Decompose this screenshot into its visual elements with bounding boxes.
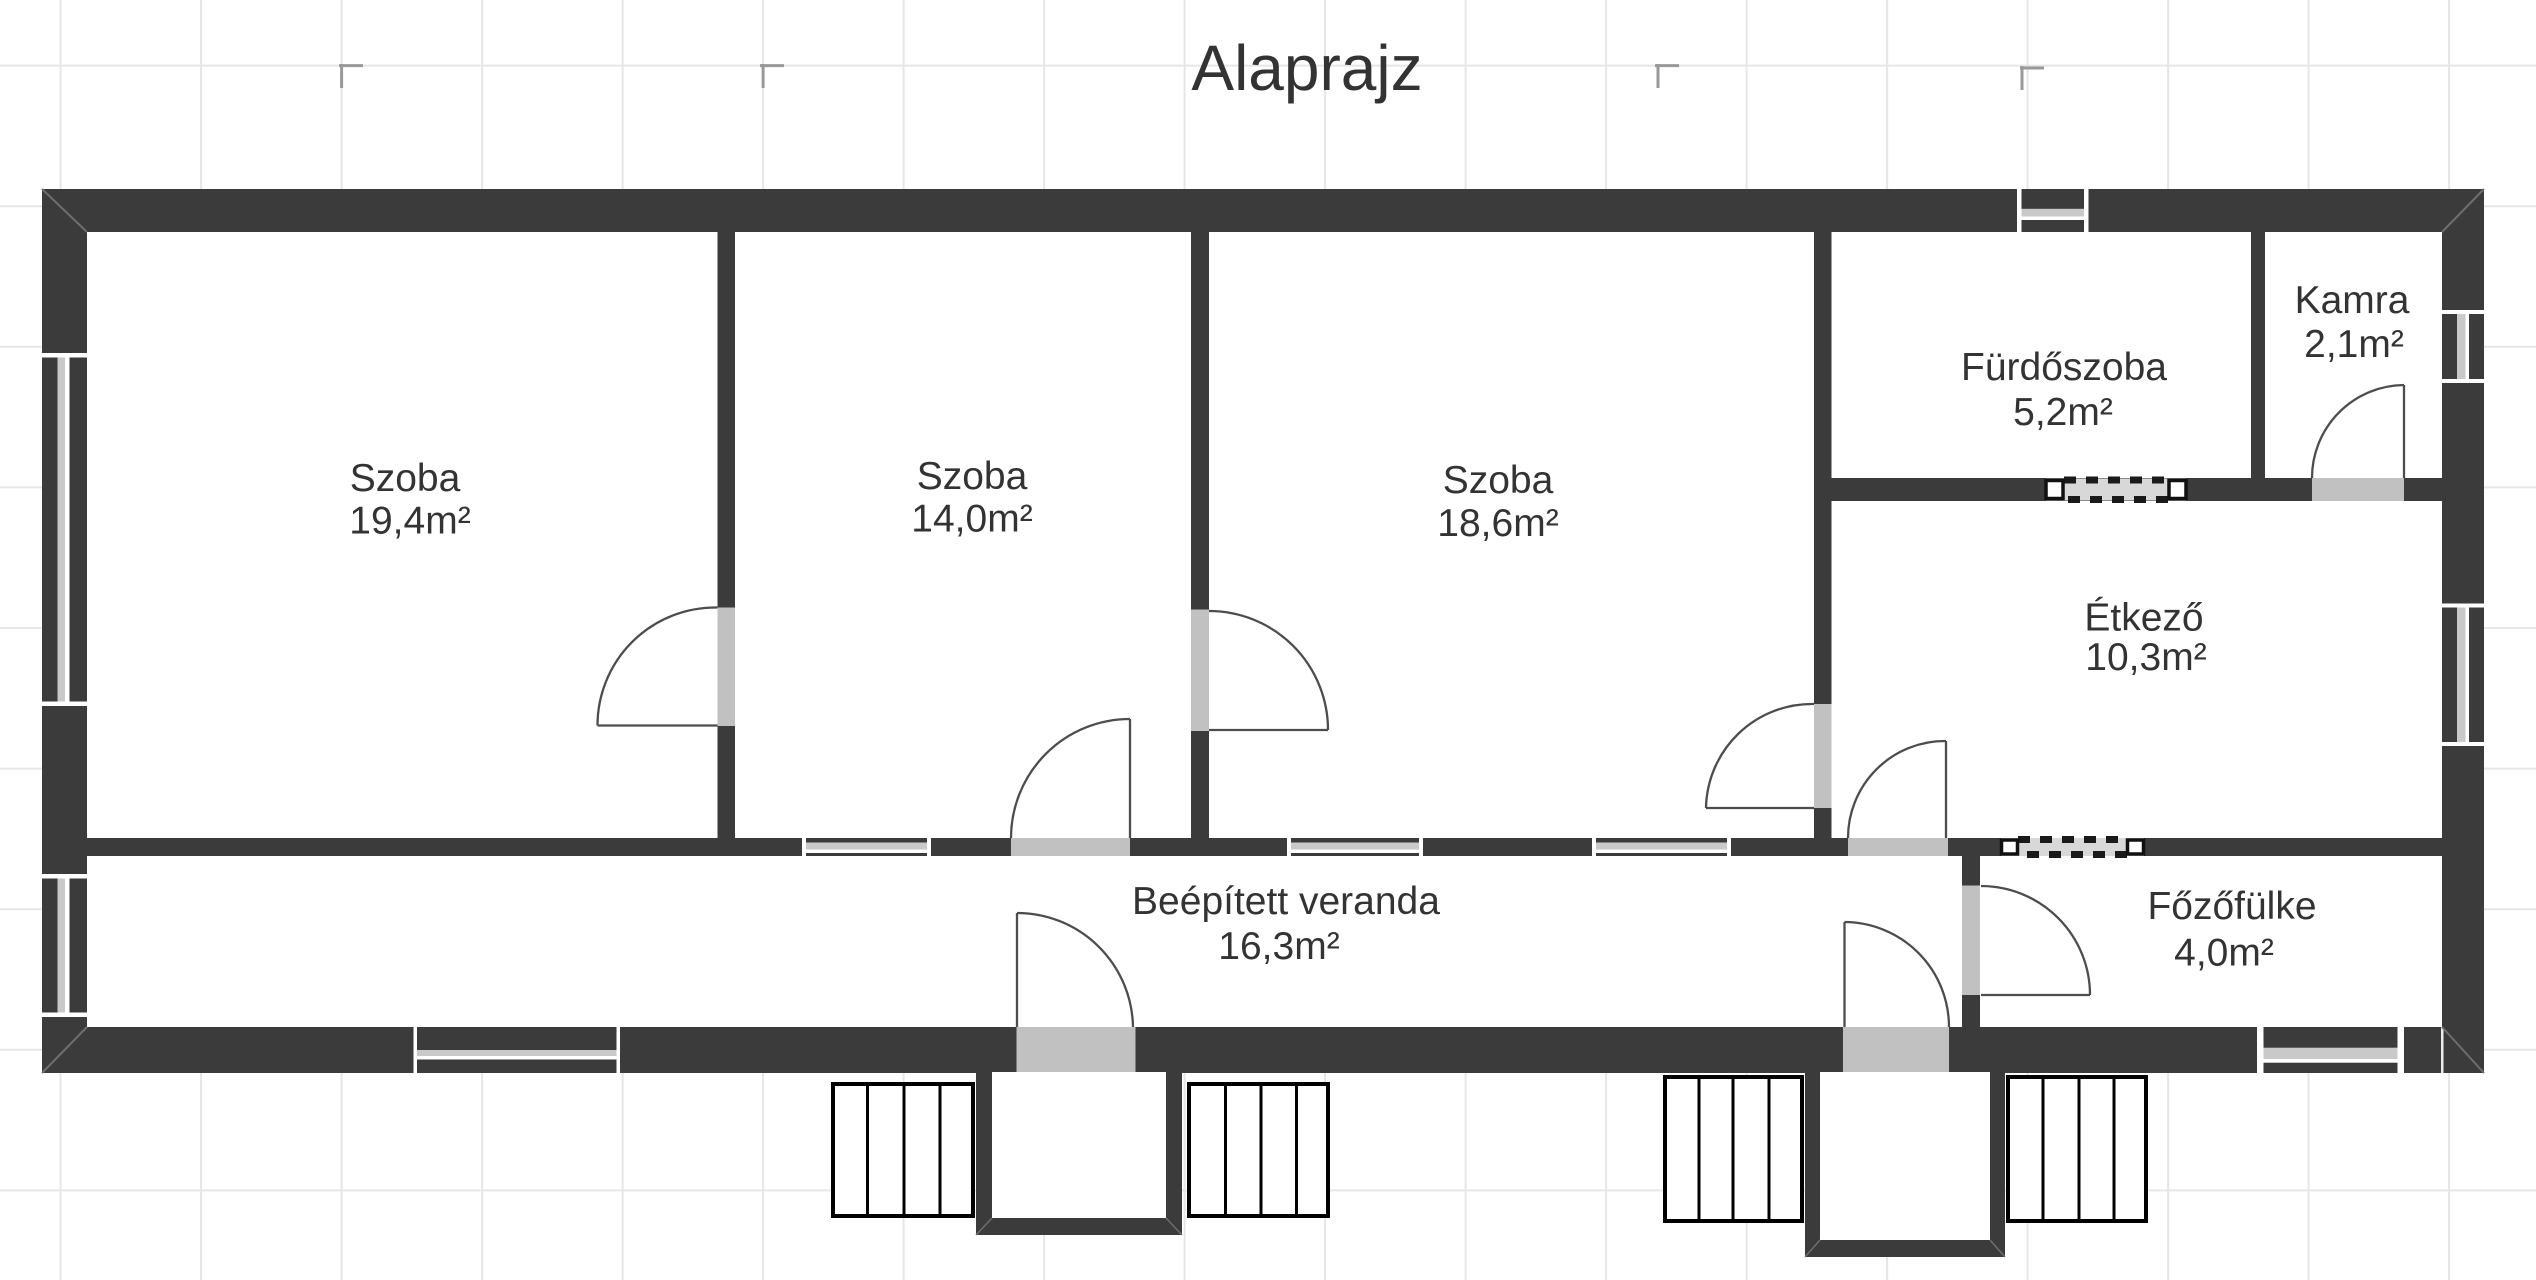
svg-text:19,4m²: 19,4m² <box>349 500 470 543</box>
svg-text:14,0m²: 14,0m² <box>911 498 1032 541</box>
svg-text:18,6m²: 18,6m² <box>1437 502 1558 545</box>
svg-text:2,1m²: 2,1m² <box>2304 323 2404 366</box>
svg-text:Étkező: Étkező <box>2084 597 2203 640</box>
svg-text:Fürdőszoba: Fürdőszoba <box>1961 346 2167 389</box>
svg-text:Szoba: Szoba <box>350 457 461 500</box>
svg-text:Szoba: Szoba <box>1443 459 1554 502</box>
svg-text:Szoba: Szoba <box>917 455 1028 498</box>
svg-text:Főzőfülke: Főzőfülke <box>2147 885 2316 928</box>
svg-text:16,3m²: 16,3m² <box>1218 925 1339 968</box>
svg-text:Alaprajz: Alaprajz <box>1191 32 1422 104</box>
svg-text:4,0m²: 4,0m² <box>2174 932 2274 975</box>
svg-text:5,2m²: 5,2m² <box>2013 391 2113 434</box>
svg-text:Beépített veranda: Beépített veranda <box>1132 880 1440 923</box>
svg-text:10,3m²: 10,3m² <box>2085 636 2206 679</box>
svg-text:Kamra: Kamra <box>2295 279 2410 322</box>
